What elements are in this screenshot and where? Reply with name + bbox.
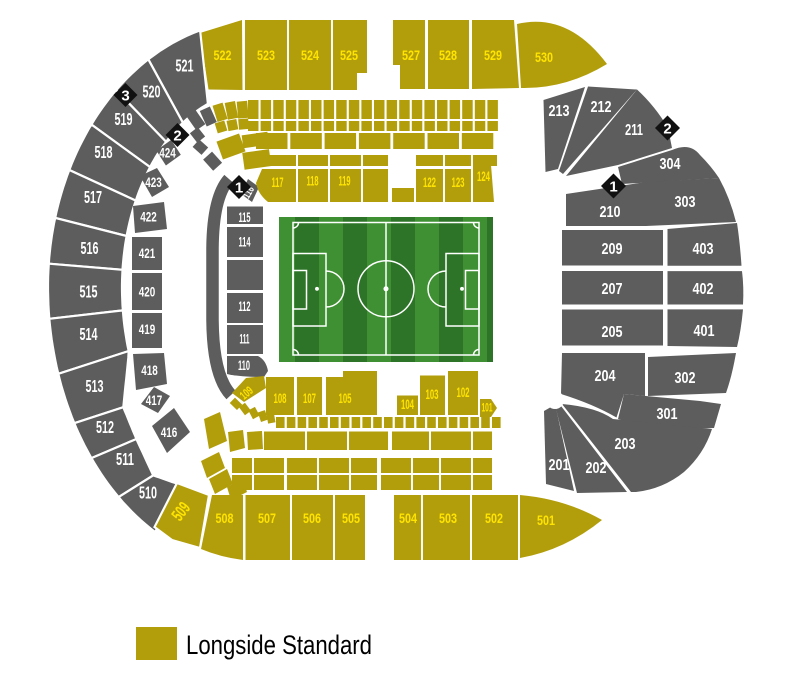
svg-text:302: 302	[675, 370, 696, 387]
svg-text:418: 418	[141, 363, 158, 378]
svg-text:110: 110	[238, 358, 250, 373]
svg-text:105: 105	[339, 391, 352, 406]
svg-text:207: 207	[602, 281, 623, 298]
svg-text:202: 202	[586, 460, 607, 477]
svg-text:203: 203	[615, 436, 636, 453]
svg-text:108: 108	[274, 391, 287, 406]
svg-text:518: 518	[95, 142, 113, 162]
svg-text:213: 213	[549, 103, 570, 120]
svg-text:117: 117	[272, 175, 284, 190]
svg-text:501: 501	[537, 513, 555, 528]
svg-text:201: 201	[549, 457, 570, 474]
svg-text:304: 304	[660, 156, 681, 173]
svg-text:209: 209	[602, 241, 623, 258]
svg-text:101: 101	[482, 403, 493, 415]
svg-text:1: 1	[235, 180, 243, 197]
svg-text:529: 529	[484, 48, 502, 63]
svg-text:2: 2	[173, 128, 181, 145]
svg-text:103: 103	[426, 387, 439, 402]
svg-text:514: 514	[80, 324, 98, 344]
svg-text:522: 522	[214, 48, 232, 63]
svg-text:511: 511	[116, 449, 134, 469]
svg-text:303: 303	[675, 194, 696, 211]
svg-text:502: 502	[485, 511, 503, 526]
svg-text:508: 508	[216, 511, 234, 526]
svg-text:119: 119	[339, 174, 351, 189]
svg-text:102: 102	[457, 385, 470, 400]
svg-text:523: 523	[257, 48, 275, 63]
svg-text:107: 107	[303, 391, 316, 406]
svg-text:510: 510	[139, 483, 157, 503]
svg-text:124: 124	[477, 169, 490, 184]
svg-text:2: 2	[663, 121, 671, 138]
svg-text:Longside Standard: Longside Standard	[186, 630, 372, 660]
svg-text:504: 504	[399, 511, 417, 526]
svg-text:123: 123	[452, 175, 465, 190]
svg-text:513: 513	[86, 376, 104, 396]
svg-text:520: 520	[143, 82, 161, 102]
svg-text:424: 424	[159, 146, 176, 161]
svg-text:118: 118	[307, 174, 319, 189]
svg-text:401: 401	[694, 323, 715, 340]
svg-text:204: 204	[595, 368, 616, 385]
svg-text:112: 112	[239, 299, 251, 314]
svg-text:423: 423	[145, 175, 162, 190]
svg-text:114: 114	[239, 235, 251, 250]
svg-text:524: 524	[301, 48, 319, 63]
svg-text:517: 517	[84, 187, 102, 207]
svg-text:507: 507	[258, 511, 276, 526]
svg-text:506: 506	[303, 511, 321, 526]
svg-text:3: 3	[121, 88, 129, 105]
svg-text:521: 521	[176, 56, 194, 76]
svg-text:111: 111	[240, 332, 250, 347]
svg-text:512: 512	[96, 417, 114, 437]
svg-text:210: 210	[600, 204, 621, 221]
svg-text:417: 417	[146, 393, 163, 408]
svg-text:519: 519	[115, 109, 133, 129]
svg-text:505: 505	[342, 511, 360, 526]
svg-text:516: 516	[81, 238, 99, 258]
svg-text:416: 416	[161, 425, 178, 440]
svg-text:122: 122	[423, 175, 436, 190]
svg-text:211: 211	[625, 122, 643, 139]
svg-text:422: 422	[140, 210, 157, 225]
svg-text:115: 115	[239, 210, 251, 225]
svg-text:301: 301	[657, 406, 678, 423]
svg-text:420: 420	[139, 285, 156, 300]
svg-text:527: 527	[402, 48, 420, 63]
svg-text:403: 403	[693, 241, 714, 258]
svg-text:212: 212	[591, 99, 612, 116]
svg-text:528: 528	[439, 48, 457, 63]
svg-text:503: 503	[439, 511, 457, 526]
svg-text:515: 515	[80, 282, 98, 302]
svg-text:1: 1	[609, 179, 617, 196]
svg-text:402: 402	[693, 281, 714, 298]
svg-text:205: 205	[602, 324, 623, 341]
svg-text:525: 525	[340, 48, 358, 63]
svg-text:421: 421	[139, 246, 156, 261]
svg-text:104: 104	[401, 397, 414, 412]
svg-text:530: 530	[535, 50, 553, 65]
svg-text:419: 419	[139, 322, 156, 337]
